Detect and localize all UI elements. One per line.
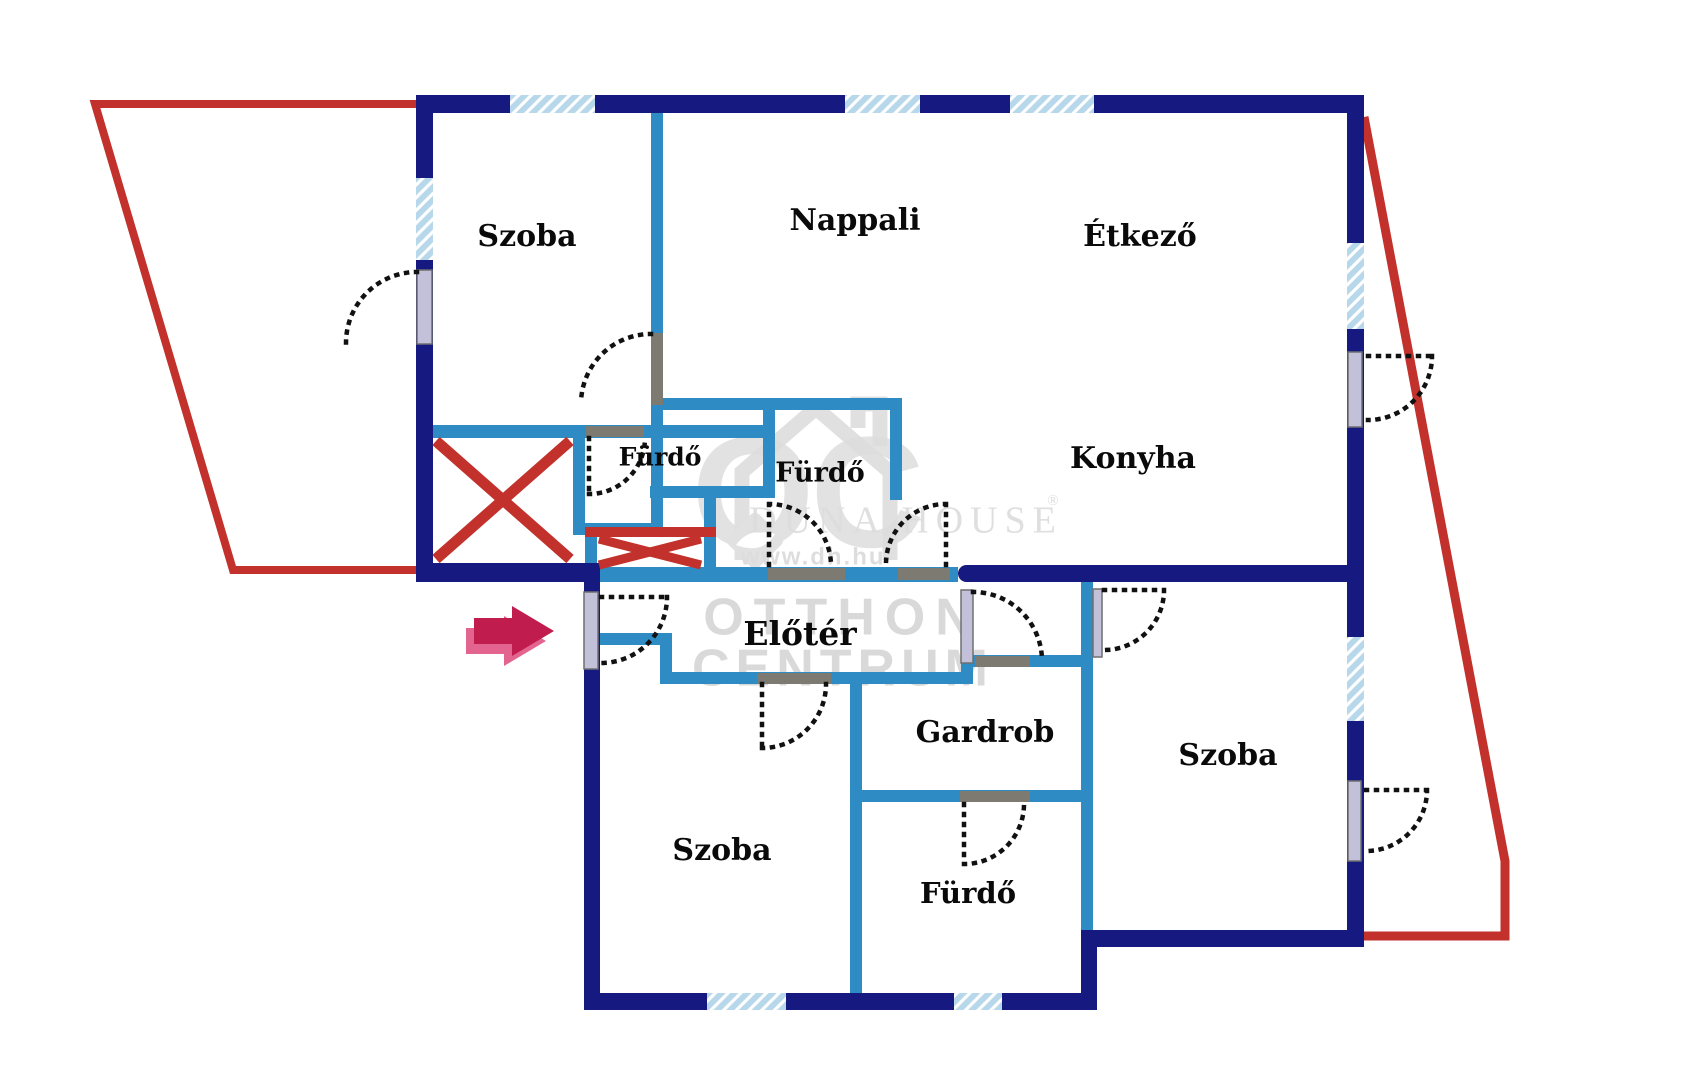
wall-bottom-right <box>1081 930 1364 947</box>
window-bottom-2 <box>954 993 1002 1010</box>
watermark: OC DUNA HOUSE ® www.dh.hu OTTHON CENTRUM <box>692 404 1063 698</box>
wall-bottom-left <box>584 993 1097 1010</box>
window-top-1 <box>510 95 595 113</box>
watermark-registered: ® <box>1047 493 1058 509</box>
floor-plan-drawing: OC DUNA HOUSE ® www.dh.hu OTTHON CENTRUM <box>0 0 1694 1080</box>
door-entrance <box>584 592 598 669</box>
opening-furdo2 <box>768 568 845 580</box>
wall-szoba-gardrob <box>850 672 862 1010</box>
wall-konyha-bottom <box>958 565 1364 582</box>
opening-furdo1 <box>586 426 644 437</box>
swing-balcony-lower <box>1366 790 1427 851</box>
window-right-upper <box>1347 243 1364 329</box>
opening-szoba-bl <box>757 673 831 684</box>
terrace-right <box>1364 117 1505 936</box>
window-top-2 <box>845 95 920 113</box>
opening-konyha <box>898 568 950 580</box>
wall-furdo2-right <box>890 410 902 500</box>
wall-furdo1-step <box>650 486 775 498</box>
window-bottom-1 <box>707 993 786 1010</box>
door-balcony-upper <box>1348 352 1362 427</box>
wall-furdo1-left <box>573 438 585 523</box>
room-label-konyha: Konyha <box>1070 441 1196 476</box>
room-label-szoba-top-left: Szoba <box>477 219 576 254</box>
room-label-eloter: Előtér <box>743 614 857 653</box>
swing-szoba-nappali <box>581 334 651 404</box>
room-label-nappali: Nappali <box>789 203 920 238</box>
window-left <box>416 178 433 260</box>
window-top-3 <box>1010 95 1094 113</box>
wall-furdo1-furdo2 <box>763 410 775 498</box>
room-label-furdo-1: Fürdő <box>619 443 702 472</box>
room-label-furdo-2: Fürdő <box>775 458 864 489</box>
opening-furdo3 <box>960 791 1030 802</box>
floor-plan-page: OC DUNA HOUSE ® www.dh.hu OTTHON CENTRUM <box>0 0 1694 1080</box>
entrance-arrow-icon <box>466 606 554 666</box>
opening-szoba-nappali <box>651 333 663 405</box>
door-lobby-left <box>961 590 973 663</box>
watermark-website: www.dh.hu <box>739 543 885 570</box>
swing-entrance <box>601 597 667 663</box>
shaft-small-top <box>585 527 716 537</box>
wall-szoba-right-left <box>1081 565 1093 930</box>
window-right-lower <box>1347 637 1364 721</box>
opening-gardrob <box>975 656 1030 667</box>
swing-terrace-left <box>346 272 417 343</box>
door-terrace-left <box>417 270 432 344</box>
swing-furdo3 <box>964 804 1024 864</box>
room-label-szoba-bottom-left: Szoba <box>672 833 771 868</box>
room-label-gardrob: Gardrob <box>916 715 1055 750</box>
wall-left-connector <box>416 563 600 582</box>
door-balcony-lower <box>1348 781 1361 861</box>
room-label-etkezo: Étkező <box>1083 218 1197 254</box>
room-label-furdo-3: Fürdő <box>920 876 1016 910</box>
swing-lobby-right <box>1104 590 1164 650</box>
room-label-szoba-right: Szoba <box>1178 738 1277 773</box>
terrace-left <box>95 104 420 570</box>
wall-furdo2-top <box>663 398 902 410</box>
watermark-brand: DUNA HOUSE <box>749 500 1063 542</box>
door-lobby-right <box>1093 589 1102 657</box>
